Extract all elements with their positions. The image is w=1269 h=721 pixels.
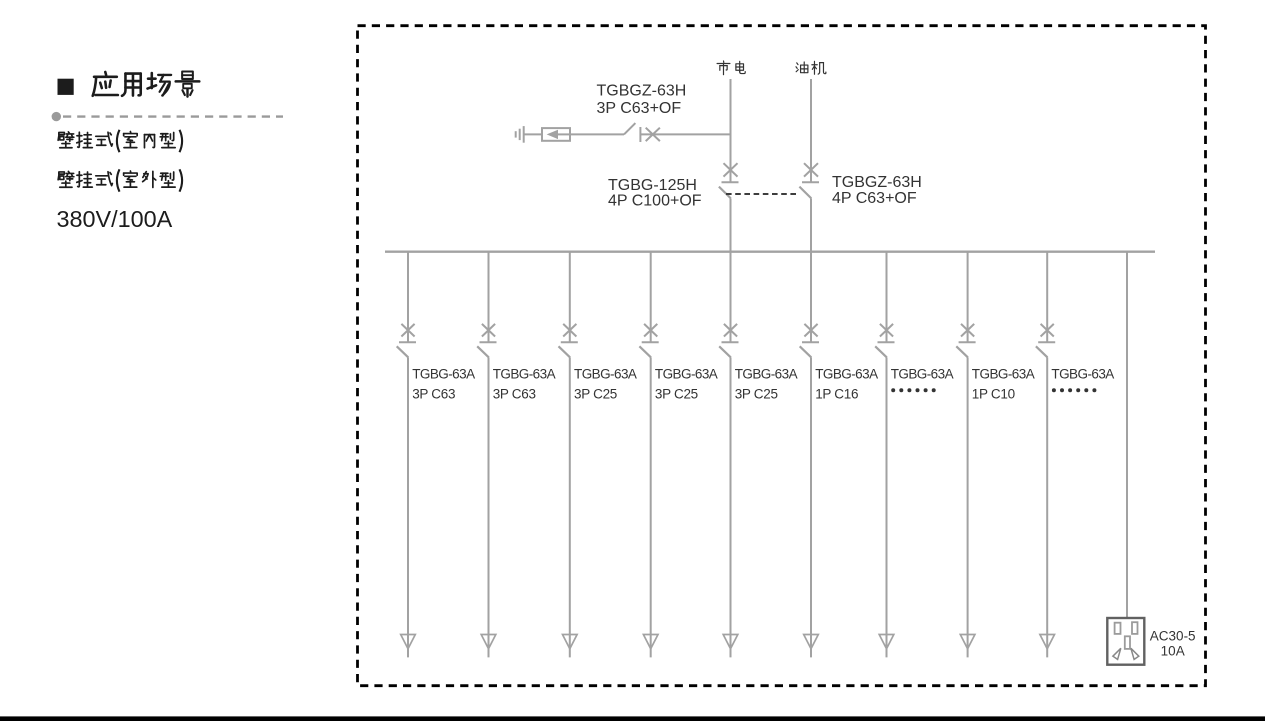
svg-text:4P C63+OF: 4P C63+OF xyxy=(832,190,917,207)
svg-text:TGBGZ-63H: TGBGZ-63H xyxy=(832,174,922,191)
svg-text:TGBG-63A: TGBG-63A xyxy=(815,367,878,382)
svg-text:3P C25: 3P C25 xyxy=(735,386,778,401)
svg-text:TGBG-63A: TGBG-63A xyxy=(574,367,637,382)
svg-text:TGBGZ-63H: TGBGZ-63H xyxy=(597,83,687,100)
svg-text:4P C100+OF: 4P C100+OF xyxy=(608,192,702,209)
svg-text:3P C63: 3P C63 xyxy=(412,386,455,401)
svg-text:1P C10: 1P C10 xyxy=(972,386,1015,401)
svg-text:AC30-5: AC30-5 xyxy=(1150,629,1196,644)
svg-text:380V/100A: 380V/100A xyxy=(57,206,173,232)
svg-text:3P C25: 3P C25 xyxy=(574,386,617,401)
svg-text:TGBG-63A: TGBG-63A xyxy=(655,367,718,382)
svg-text:TGBG-63A: TGBG-63A xyxy=(735,367,798,382)
svg-text:1P C16: 1P C16 xyxy=(815,386,858,401)
svg-text:TGBG-63A: TGBG-63A xyxy=(972,367,1035,382)
svg-text:3P C63: 3P C63 xyxy=(493,386,536,401)
svg-text:TGBG-63A: TGBG-63A xyxy=(493,367,556,382)
svg-text:3P C25: 3P C25 xyxy=(655,386,698,401)
svg-text:TGBG-63A: TGBG-63A xyxy=(412,367,475,382)
svg-text:TGBG-63A: TGBG-63A xyxy=(891,367,954,382)
svg-text:TGBG-63A: TGBG-63A xyxy=(1051,367,1114,382)
svg-text:10A: 10A xyxy=(1161,644,1185,659)
svg-text:3P C63+OF: 3P C63+OF xyxy=(597,100,682,117)
